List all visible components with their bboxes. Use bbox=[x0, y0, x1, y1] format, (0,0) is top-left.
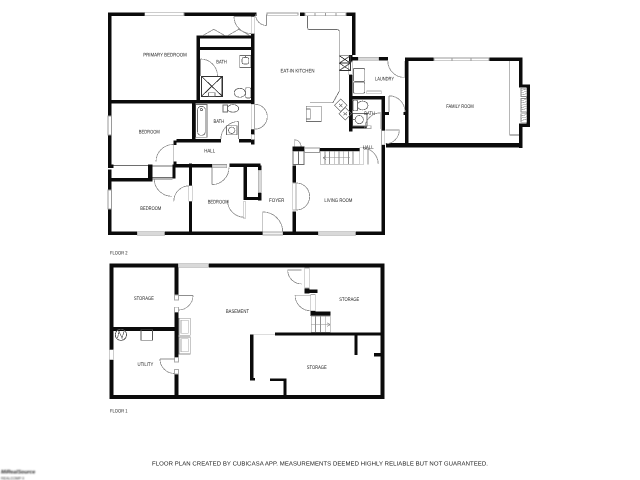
svg-text:FLOOR 1: FLOOR 1 bbox=[110, 409, 128, 415]
svg-text:STORAGE: STORAGE bbox=[134, 296, 154, 302]
svg-text:MiRealSource: MiRealSource bbox=[1, 470, 35, 476]
svg-text:REALCOMP II: REALCOMP II bbox=[1, 477, 24, 480]
svg-text:BATH: BATH bbox=[216, 60, 227, 66]
svg-text:BASEMENT: BASEMENT bbox=[226, 309, 250, 315]
svg-text:HALL: HALL bbox=[204, 148, 215, 154]
svg-text:UTILITY: UTILITY bbox=[138, 362, 154, 368]
svg-text:FOYER: FOYER bbox=[269, 198, 285, 204]
svg-text:STORAGE: STORAGE bbox=[307, 365, 327, 371]
svg-text:BATH: BATH bbox=[364, 111, 375, 117]
svg-text:STORAGE: STORAGE bbox=[339, 297, 359, 303]
svg-text:LIVING ROOM: LIVING ROOM bbox=[324, 198, 352, 204]
svg-text:PRIMARY BEDROOM: PRIMARY BEDROOM bbox=[143, 53, 187, 59]
svg-text:BEDROOM: BEDROOM bbox=[140, 206, 161, 212]
svg-text:EAT-IN KITCHEN: EAT-IN KITCHEN bbox=[281, 69, 315, 75]
svg-text:FLOOR 2: FLOOR 2 bbox=[110, 251, 128, 257]
svg-text:HALL: HALL bbox=[363, 145, 374, 151]
svg-text:BEDROOM: BEDROOM bbox=[139, 130, 160, 136]
svg-text:LAUNDRY: LAUNDRY bbox=[375, 76, 394, 82]
svg-text:BATH: BATH bbox=[214, 119, 225, 125]
svg-text:FLOOR PLAN CREATED BY CUBICASA: FLOOR PLAN CREATED BY CUBICASA APP. MEAS… bbox=[152, 461, 488, 468]
svg-text:BEDROOM: BEDROOM bbox=[208, 199, 229, 205]
svg-text:FAMILY ROOM: FAMILY ROOM bbox=[446, 104, 474, 110]
